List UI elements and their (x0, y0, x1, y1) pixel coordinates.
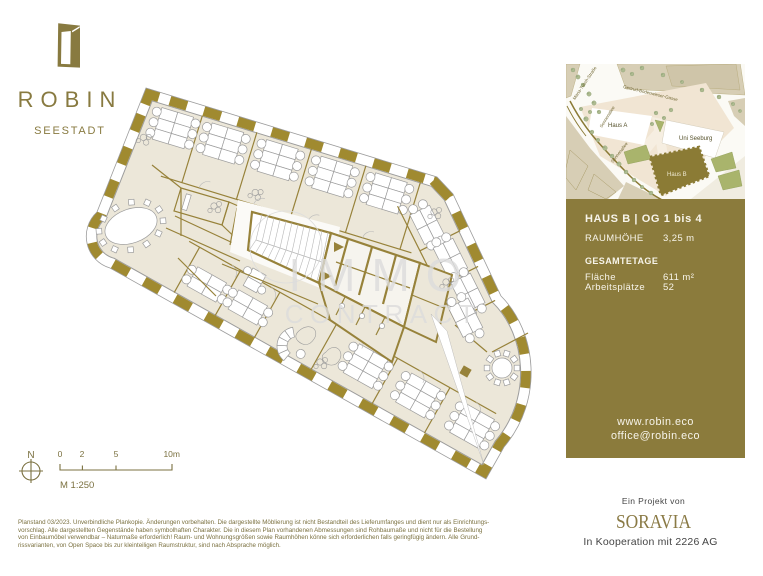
svg-text:M 1:250: M 1:250 (60, 480, 94, 491)
svg-text:Uni Seeburg: Uni Seeburg (679, 136, 712, 142)
svg-text:2: 2 (80, 449, 85, 459)
svg-text:CONTRACT: CONTRACT (285, 299, 481, 329)
svg-text:0: 0 (58, 449, 63, 459)
svg-text:5: 5 (114, 449, 119, 459)
svg-text:10m: 10m (163, 449, 180, 459)
svg-text:N: N (27, 450, 34, 461)
svg-text:Haus A: Haus A (608, 123, 627, 129)
svg-text:IMMO: IMMO (288, 249, 477, 301)
svg-text:Haus B: Haus B (667, 172, 687, 178)
